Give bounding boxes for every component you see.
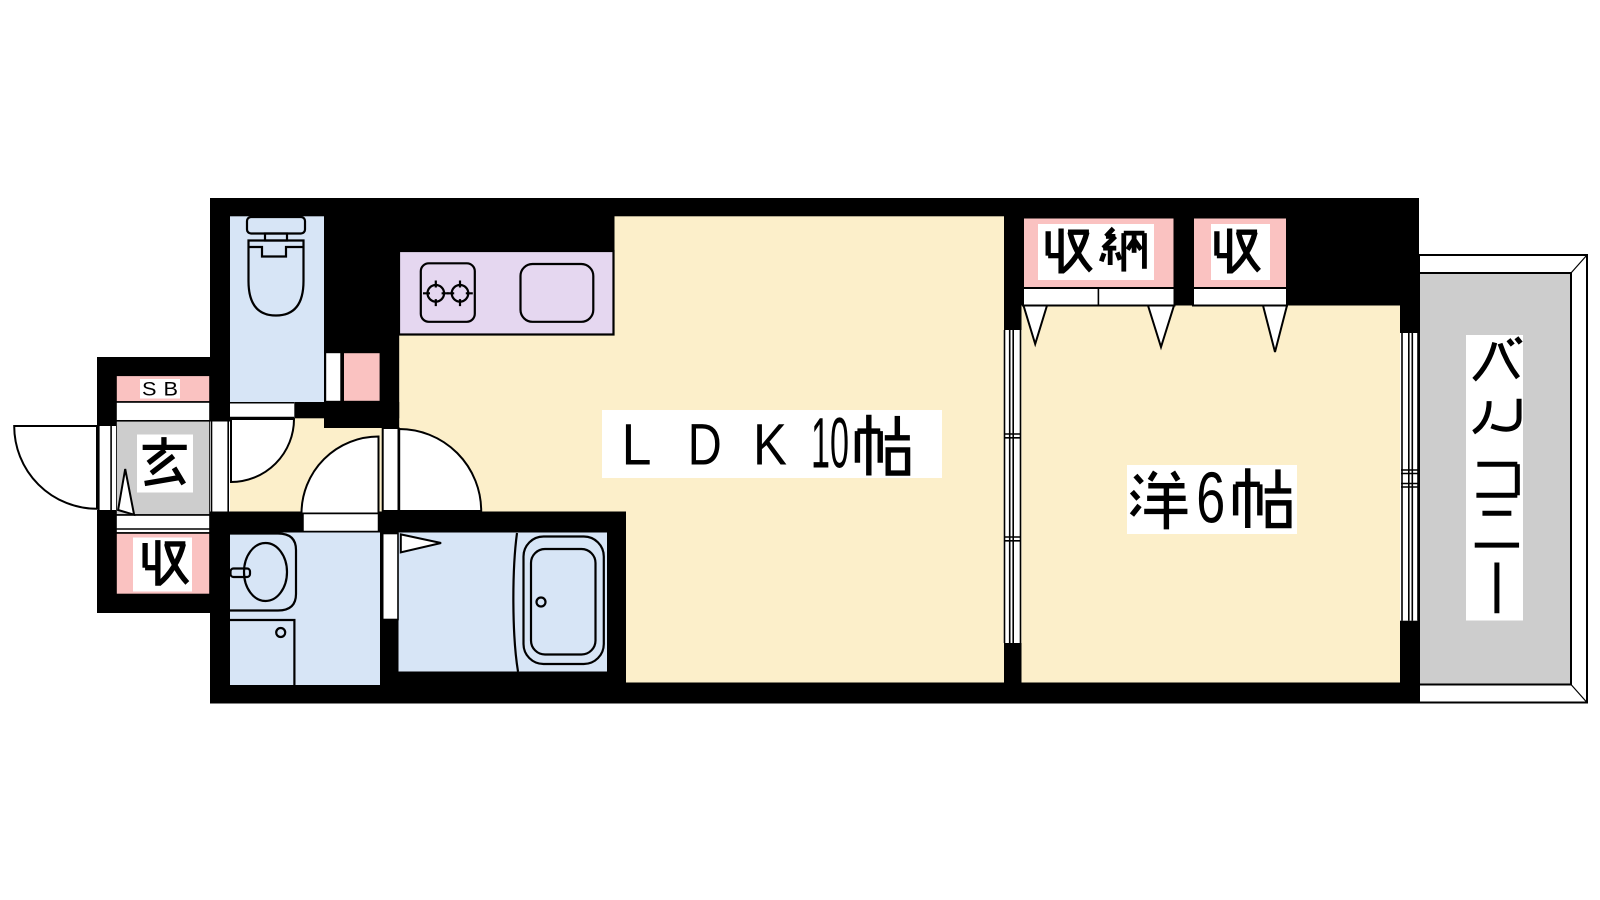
svg-text:S: S	[142, 380, 157, 401]
svg-text:L: L	[622, 412, 652, 477]
svg-text:D: D	[688, 412, 722, 477]
svg-text:10: 10	[811, 405, 849, 484]
svg-text:K: K	[753, 412, 787, 477]
svg-text:6: 6	[1196, 459, 1225, 539]
svg-text:B: B	[164, 380, 179, 401]
